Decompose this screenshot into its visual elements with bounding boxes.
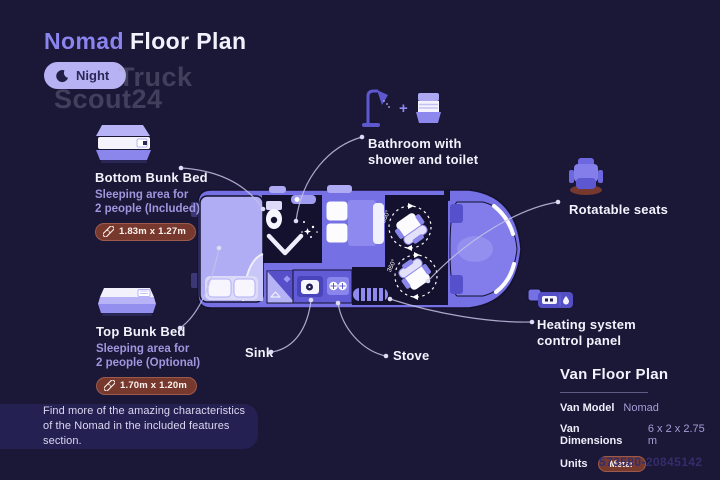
ruler-icon bbox=[103, 226, 114, 237]
bottom-bunk-subtitle-1: Sleeping area for bbox=[95, 189, 208, 203]
info-row-dimensions: Van Dimensions 6 x 2 x 2.75 m bbox=[560, 423, 712, 447]
van-floor-plan-illustration: 360° 360° bbox=[185, 170, 545, 320]
plus-separator: + bbox=[399, 100, 408, 117]
bathroom-label-2: shower and toilet bbox=[368, 152, 478, 168]
page-title: NomadFloor Plan bbox=[44, 28, 246, 55]
units-label: Units bbox=[560, 458, 588, 470]
top-bunk-subtitle-1: Sleeping area for bbox=[96, 343, 200, 357]
bathroom-annotation: + Bathroom with shower and toilet bbox=[356, 88, 478, 168]
top-bunk-dimensions: 1.70m x 1.20m bbox=[120, 380, 187, 391]
seat-icon bbox=[565, 156, 607, 196]
cab-area bbox=[444, 190, 517, 296]
info-row-model: Van Model Nomad bbox=[560, 402, 712, 414]
van-dimensions-label: Van Dimensions bbox=[560, 423, 639, 447]
nomad-floor-plan-page: NomadFloor Plan Night Truck Scout24 bbox=[0, 0, 720, 480]
info-panel-divider bbox=[560, 392, 648, 393]
features-note-line1: Find more of the amazing characteristics bbox=[43, 404, 258, 419]
heating-label-2: control panel bbox=[537, 333, 636, 349]
top-bunk-annotation: Top Bunk Bed Sleeping area for 2 people … bbox=[96, 286, 200, 396]
sink-label: Sink bbox=[245, 345, 273, 361]
toilet-icon bbox=[414, 92, 443, 125]
sliding-door-left bbox=[269, 186, 286, 193]
bottom-bunk-subtitle-2: 2 people (Included) bbox=[95, 203, 208, 217]
watermark-scout24: Scout24 bbox=[54, 88, 193, 110]
top-bunk-dimension-badge: 1.70m x 1.20m bbox=[96, 377, 197, 395]
top-bunk-subtitle-2: 2 people (Optional) bbox=[96, 357, 200, 371]
passenger-seat bbox=[450, 275, 463, 294]
dinette-seats bbox=[326, 200, 384, 246]
heating-label-1: Heating system bbox=[537, 317, 636, 333]
kitchen-counter bbox=[293, 270, 352, 303]
wardrobe bbox=[267, 271, 295, 303]
rotatable-seats-label: Rotatable seats bbox=[569, 202, 668, 218]
top-bunk-title: Top Bunk Bed bbox=[96, 324, 200, 340]
sink-unit bbox=[297, 276, 323, 297]
page-title-model: Nomad bbox=[44, 28, 124, 54]
cab-door-slot bbox=[444, 190, 450, 201]
heating-annotation: Heating system control panel bbox=[536, 292, 636, 349]
bottom-bunk-dimension-badge: 1.83m x 1.27m bbox=[95, 223, 196, 241]
night-mode-toggle[interactable]: Night bbox=[44, 62, 126, 89]
stove-unit bbox=[327, 277, 349, 295]
features-note-line2: of the Nomad in the included features se… bbox=[43, 419, 258, 449]
ruler-icon bbox=[104, 380, 115, 391]
listing-id: 573580-20845142 bbox=[599, 455, 702, 469]
bottom-bunk-title: Bottom Bunk Bed bbox=[95, 170, 208, 186]
van-dimensions-value: 6 x 2 x 2.75 m bbox=[648, 423, 712, 447]
features-note: Find more of the amazing characteristics… bbox=[0, 404, 258, 449]
bottom-bunk-annotation: Bottom Bunk Bed Sleeping area for 2 peop… bbox=[95, 124, 208, 242]
bottom-bunk-dimensions: 1.83m x 1.27m bbox=[119, 226, 186, 237]
rotatable-seats-annotation: Rotatable seats bbox=[563, 156, 668, 218]
bathroom-label-1: Bathroom with bbox=[368, 136, 478, 152]
page-title-rest: Floor Plan bbox=[130, 28, 246, 54]
dashboard bbox=[457, 236, 493, 262]
stove-label: Stove bbox=[393, 348, 429, 364]
driver-seat bbox=[450, 204, 463, 223]
shower-head-floor bbox=[291, 195, 316, 204]
moon-icon bbox=[55, 69, 69, 83]
bed-area bbox=[200, 196, 263, 302]
bunk-bed-icon bbox=[95, 124, 153, 164]
heating-panel-icon bbox=[538, 292, 573, 308]
night-mode-label: Night bbox=[76, 68, 109, 83]
shower-icon bbox=[360, 88, 393, 128]
entry-step bbox=[353, 288, 388, 301]
info-panel-title: Van Floor Plan bbox=[560, 366, 712, 383]
toilet-floor bbox=[266, 201, 282, 229]
sliding-door-right bbox=[327, 185, 352, 193]
bunk-bed-icon bbox=[96, 286, 158, 318]
watermark-truck: Truck bbox=[118, 66, 193, 88]
van-model-value: Nomad bbox=[623, 402, 658, 414]
van-model-label: Van Model bbox=[560, 402, 614, 414]
